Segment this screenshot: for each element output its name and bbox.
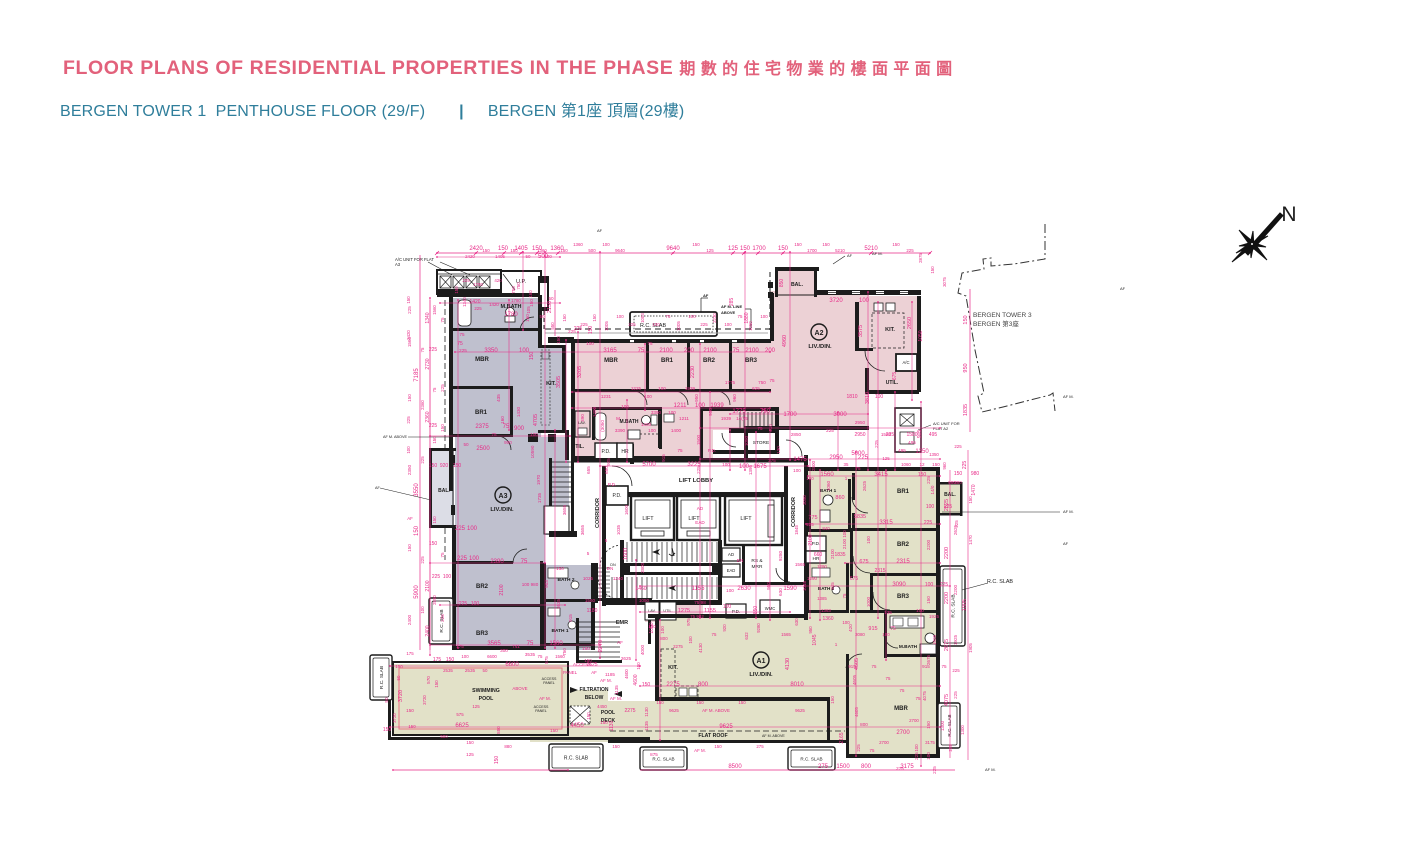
svg-text:3080: 3080 bbox=[855, 632, 865, 637]
svg-text:950: 950 bbox=[694, 394, 699, 402]
svg-text:2275: 2275 bbox=[673, 644, 683, 649]
svg-text:BELOW: BELOW bbox=[585, 695, 604, 701]
svg-text:160: 160 bbox=[500, 416, 505, 424]
svg-text:225: 225 bbox=[420, 556, 425, 564]
svg-text:AF M.: AF M. bbox=[610, 696, 622, 701]
svg-text:1925: 1925 bbox=[932, 634, 937, 645]
svg-text:2200: 2200 bbox=[944, 592, 950, 604]
svg-text:2800: 2800 bbox=[811, 460, 816, 471]
svg-text:150: 150 bbox=[968, 496, 973, 504]
svg-text:150: 150 bbox=[407, 394, 412, 402]
svg-text:BAL.: BAL. bbox=[791, 282, 804, 288]
svg-text:1240: 1240 bbox=[613, 576, 624, 581]
svg-text:75: 75 bbox=[647, 341, 653, 346]
svg-text:225: 225 bbox=[459, 601, 468, 607]
svg-text:1045: 1045 bbox=[812, 634, 818, 645]
svg-text:75 98: 75 98 bbox=[694, 600, 706, 605]
svg-text:100: 100 bbox=[471, 601, 480, 607]
svg-text:3720: 3720 bbox=[392, 713, 397, 723]
svg-text:6600: 6600 bbox=[487, 654, 497, 659]
svg-text:860: 860 bbox=[835, 495, 844, 501]
svg-text:915: 915 bbox=[848, 664, 856, 669]
svg-text:1400: 1400 bbox=[671, 428, 682, 433]
svg-text:980: 980 bbox=[971, 471, 980, 477]
svg-text:575: 575 bbox=[456, 712, 464, 717]
svg-text:5700: 5700 bbox=[642, 462, 656, 468]
svg-text:AF M. ABOVE: AF M. ABOVE bbox=[383, 435, 408, 439]
svg-text:2100: 2100 bbox=[808, 534, 814, 545]
svg-text:950: 950 bbox=[963, 363, 969, 372]
svg-text:100: 100 bbox=[842, 620, 850, 625]
svg-text:1005: 1005 bbox=[604, 321, 609, 331]
svg-text:9280: 9280 bbox=[778, 550, 783, 561]
svg-text:1810: 1810 bbox=[846, 394, 857, 400]
svg-text:1939: 1939 bbox=[685, 386, 696, 391]
svg-text:1: 1 bbox=[835, 642, 838, 647]
svg-text:A1: A1 bbox=[757, 658, 766, 665]
svg-text:100: 100 bbox=[866, 536, 871, 544]
svg-text:1560: 1560 bbox=[820, 472, 834, 478]
svg-text:AF M.: AF M. bbox=[872, 251, 883, 256]
svg-text:1385: 1385 bbox=[817, 596, 827, 601]
svg-text:3505: 3505 bbox=[556, 376, 562, 388]
svg-text:EMR: EMR bbox=[616, 620, 628, 626]
svg-text:BAL.: BAL. bbox=[438, 488, 450, 494]
svg-text:1905: 1905 bbox=[962, 599, 968, 611]
svg-text:225: 225 bbox=[474, 306, 482, 311]
svg-text:100: 100 bbox=[925, 582, 934, 588]
svg-text:100: 100 bbox=[443, 574, 452, 580]
svg-text:150: 150 bbox=[556, 566, 564, 571]
svg-text:75: 75 bbox=[890, 626, 896, 632]
svg-text:175: 175 bbox=[456, 644, 464, 649]
svg-text:2630: 2630 bbox=[737, 586, 751, 592]
svg-text:POOL: POOL bbox=[601, 710, 615, 716]
svg-text:PANEL: PANEL bbox=[543, 681, 555, 685]
svg-text:KIT.: KIT. bbox=[885, 327, 895, 333]
svg-text:2360: 2360 bbox=[420, 400, 425, 410]
svg-text:1500: 1500 bbox=[696, 434, 701, 445]
svg-text:AF M.: AF M. bbox=[694, 748, 706, 753]
svg-text:75: 75 bbox=[638, 348, 645, 354]
svg-text:75: 75 bbox=[870, 748, 875, 753]
svg-text:BR1: BR1 bbox=[897, 489, 910, 495]
svg-text:2535: 2535 bbox=[465, 668, 476, 673]
svg-text:75: 75 bbox=[757, 426, 763, 431]
svg-text:35: 35 bbox=[844, 462, 849, 467]
svg-text:1035: 1035 bbox=[616, 524, 621, 535]
svg-text:75: 75 bbox=[459, 332, 465, 337]
svg-text:1340: 1340 bbox=[462, 297, 467, 307]
svg-text:75: 75 bbox=[677, 448, 683, 453]
svg-text:50: 50 bbox=[548, 296, 554, 301]
svg-text:STORE: STORE bbox=[753, 440, 769, 446]
svg-text:1470: 1470 bbox=[968, 535, 973, 545]
svg-text:1025: 1025 bbox=[583, 576, 594, 581]
svg-text:1580: 1580 bbox=[881, 432, 892, 437]
svg-text:1050: 1050 bbox=[918, 330, 924, 341]
svg-text:AF: AF bbox=[703, 293, 709, 298]
svg-text:RS &: RS & bbox=[751, 558, 763, 564]
svg-text:75: 75 bbox=[738, 314, 743, 319]
svg-text:225: 225 bbox=[940, 582, 949, 588]
svg-text:5000: 5000 bbox=[851, 451, 865, 457]
svg-text:100: 100 bbox=[724, 322, 732, 327]
svg-text:2635: 2635 bbox=[556, 598, 561, 609]
svg-text:LIV./DIN.: LIV./DIN. bbox=[808, 344, 832, 350]
svg-text:M.BATH: M.BATH bbox=[899, 644, 918, 650]
svg-text:1405: 1405 bbox=[495, 254, 505, 259]
svg-text:75: 75 bbox=[521, 559, 528, 565]
svg-text:ACCESS: ACCESS bbox=[573, 662, 591, 667]
svg-text:1970: 1970 bbox=[536, 474, 541, 485]
svg-text:660: 660 bbox=[814, 552, 823, 558]
svg-text:160: 160 bbox=[528, 290, 533, 298]
svg-text:500: 500 bbox=[588, 248, 596, 253]
svg-text:AD: AD bbox=[728, 552, 735, 557]
svg-text:975: 975 bbox=[686, 618, 691, 626]
svg-text:500: 500 bbox=[544, 254, 552, 259]
svg-text:6625: 6625 bbox=[455, 723, 469, 729]
svg-text:2100: 2100 bbox=[830, 549, 835, 559]
svg-text:2375: 2375 bbox=[475, 424, 489, 430]
svg-text:4605: 4605 bbox=[854, 707, 859, 717]
svg-text:150: 150 bbox=[642, 682, 651, 688]
svg-text:1460: 1460 bbox=[635, 586, 646, 592]
svg-text:3535: 3535 bbox=[525, 652, 536, 657]
svg-text:100: 100 bbox=[882, 632, 890, 637]
svg-text:AF: AF bbox=[1063, 541, 1069, 546]
svg-text:M.BATH: M.BATH bbox=[619, 419, 638, 425]
svg-text:150: 150 bbox=[692, 242, 700, 247]
svg-text:150: 150 bbox=[529, 299, 534, 307]
svg-text:225: 225 bbox=[420, 456, 425, 464]
svg-text:FILTRATION: FILTRATION bbox=[580, 687, 609, 693]
svg-text:BR1: BR1 bbox=[661, 358, 674, 364]
svg-text:850: 850 bbox=[779, 279, 785, 288]
svg-text:2100: 2100 bbox=[499, 584, 505, 595]
svg-text:750: 750 bbox=[516, 282, 521, 290]
svg-text:1360: 1360 bbox=[537, 248, 547, 253]
svg-text:150: 150 bbox=[778, 246, 789, 252]
svg-text:225: 225 bbox=[406, 416, 411, 424]
svg-text:75: 75 bbox=[432, 387, 437, 392]
svg-text:LIFT LOBBY: LIFT LOBBY bbox=[679, 478, 713, 484]
svg-text:625: 625 bbox=[752, 386, 760, 391]
svg-text:225: 225 bbox=[954, 444, 962, 449]
svg-text:2150: 2150 bbox=[547, 301, 553, 313]
svg-text:100: 100 bbox=[793, 468, 801, 473]
svg-text:100: 100 bbox=[467, 526, 478, 532]
svg-text:2400: 2400 bbox=[407, 614, 412, 625]
svg-text:275: 275 bbox=[818, 764, 829, 770]
svg-text:655: 655 bbox=[586, 466, 591, 474]
svg-text:100: 100 bbox=[644, 394, 652, 399]
svg-text:2315: 2315 bbox=[874, 568, 885, 574]
svg-text:50: 50 bbox=[526, 254, 531, 259]
svg-text:4130: 4130 bbox=[698, 643, 703, 653]
svg-text:ABOVE: ABOVE bbox=[512, 686, 527, 691]
svg-text:AF M. ABOVE: AF M. ABOVE bbox=[762, 734, 785, 738]
svg-text:2950: 2950 bbox=[854, 432, 865, 438]
svg-text:POOL: POOL bbox=[479, 696, 495, 702]
svg-text:1500: 1500 bbox=[836, 764, 850, 770]
svg-text:9280: 9280 bbox=[756, 623, 761, 633]
svg-text:100: 100 bbox=[926, 504, 935, 510]
svg-text:300: 300 bbox=[500, 648, 508, 653]
svg-text:75 982: 75 982 bbox=[690, 614, 704, 619]
svg-text:AF M.: AF M. bbox=[1063, 394, 1074, 399]
svg-text:135: 135 bbox=[884, 610, 892, 615]
svg-text:4705: 4705 bbox=[533, 414, 539, 426]
svg-text:3720: 3720 bbox=[398, 690, 404, 702]
svg-text:P.D.: P.D. bbox=[608, 482, 616, 487]
svg-text:150: 150 bbox=[550, 728, 558, 733]
svg-text:750: 750 bbox=[758, 380, 766, 385]
svg-text:800: 800 bbox=[660, 636, 668, 641]
svg-text:905: 905 bbox=[917, 430, 923, 439]
svg-text:570: 570 bbox=[426, 676, 431, 684]
svg-text:150: 150 bbox=[383, 727, 392, 733]
svg-text:BAL.: BAL. bbox=[944, 492, 956, 498]
svg-text:2100: 2100 bbox=[659, 348, 673, 354]
svg-text:1590: 1590 bbox=[783, 586, 797, 592]
svg-text:(3050: (3050 bbox=[600, 420, 605, 432]
svg-text:1180: 1180 bbox=[587, 608, 598, 614]
svg-text:75: 75 bbox=[761, 408, 767, 413]
svg-text:880: 880 bbox=[954, 480, 962, 485]
svg-text:150: 150 bbox=[612, 744, 620, 749]
svg-text:1560: 1560 bbox=[555, 654, 565, 659]
svg-text:225: 225 bbox=[954, 520, 959, 528]
svg-text:495: 495 bbox=[898, 448, 906, 453]
svg-text:2350: 2350 bbox=[407, 464, 412, 475]
svg-text:100 980: 100 980 bbox=[522, 582, 539, 587]
svg-text:1363: 1363 bbox=[821, 608, 831, 613]
svg-text:875: 875 bbox=[650, 752, 658, 757]
svg-text:225: 225 bbox=[826, 428, 834, 433]
svg-text:845: 845 bbox=[830, 582, 835, 590]
svg-text:100: 100 bbox=[842, 530, 847, 538]
svg-text:1350: 1350 bbox=[915, 449, 929, 455]
svg-text:N: N bbox=[1281, 203, 1296, 226]
svg-text:75: 75 bbox=[886, 676, 891, 681]
svg-text:2200: 2200 bbox=[944, 547, 950, 559]
svg-text:75: 75 bbox=[842, 593, 847, 598]
svg-text:150: 150 bbox=[738, 700, 746, 705]
svg-text:14/0: 14/0 bbox=[930, 485, 935, 494]
svg-text:950: 950 bbox=[708, 408, 713, 416]
svg-text:100: 100 bbox=[688, 636, 693, 644]
svg-text:1275: 1275 bbox=[678, 608, 690, 614]
svg-text:160: 160 bbox=[525, 314, 530, 322]
svg-text:UTIL.: UTIL. bbox=[663, 609, 672, 613]
svg-text:150: 150 bbox=[408, 724, 416, 729]
svg-text:P.D.: P.D. bbox=[732, 609, 740, 614]
svg-text:AF M.: AF M. bbox=[985, 767, 996, 772]
svg-text:1490: 1490 bbox=[592, 406, 597, 417]
svg-text:630: 630 bbox=[794, 618, 799, 626]
svg-text:900: 900 bbox=[514, 426, 525, 432]
svg-text:2165: 2165 bbox=[839, 732, 845, 743]
svg-text:A/C UNIT FOR FLAT: A/C UNIT FOR FLAT bbox=[395, 257, 434, 262]
svg-text:8010: 8010 bbox=[790, 682, 804, 688]
svg-text:ABOVE: ABOVE bbox=[721, 310, 736, 315]
svg-text:A3: A3 bbox=[499, 493, 508, 500]
svg-text:9625: 9625 bbox=[669, 708, 679, 713]
svg-text:150: 150 bbox=[794, 242, 802, 247]
svg-text:150: 150 bbox=[560, 248, 568, 253]
svg-text:50: 50 bbox=[396, 675, 401, 680]
svg-text:AF M.: AF M. bbox=[1063, 509, 1074, 514]
svg-text:225: 225 bbox=[874, 440, 879, 448]
svg-text:KIT.: KIT. bbox=[668, 665, 678, 671]
svg-text:435: 435 bbox=[496, 394, 501, 402]
svg-text:1735: 1735 bbox=[537, 492, 542, 503]
svg-text:225: 225 bbox=[806, 522, 814, 527]
svg-text:800: 800 bbox=[698, 682, 709, 688]
svg-text:675: 675 bbox=[859, 559, 868, 565]
svg-text:AF M.: AF M. bbox=[600, 678, 612, 683]
svg-text:1565: 1565 bbox=[795, 562, 806, 567]
svg-text:150: 150 bbox=[414, 525, 420, 536]
svg-text:2200: 2200 bbox=[926, 539, 931, 550]
svg-text:105: 105 bbox=[526, 306, 531, 314]
svg-text:75: 75 bbox=[733, 348, 740, 354]
svg-text:125: 125 bbox=[472, 704, 480, 709]
svg-text:675: 675 bbox=[892, 372, 898, 381]
svg-text:1600: 1600 bbox=[623, 548, 629, 560]
svg-text:BR2: BR2 bbox=[703, 358, 716, 364]
svg-text:150: 150 bbox=[822, 242, 830, 247]
svg-text:KIT.: KIT. bbox=[546, 381, 556, 387]
svg-text:840: 840 bbox=[822, 526, 830, 531]
svg-text:AF: AF bbox=[597, 228, 603, 233]
svg-text:R.C. SLAB: R.C. SLAB bbox=[947, 714, 952, 736]
svg-text:5210: 5210 bbox=[835, 248, 845, 253]
svg-text:AF M.: AF M. bbox=[539, 696, 551, 701]
svg-text:675: 675 bbox=[850, 576, 859, 582]
svg-text:125: 125 bbox=[706, 248, 714, 253]
svg-text:1050: 1050 bbox=[748, 321, 753, 331]
svg-text:75: 75 bbox=[915, 696, 921, 701]
svg-text:225: 225 bbox=[455, 526, 466, 532]
svg-text:BERGEN 第3座: BERGEN 第3座 bbox=[973, 319, 1019, 328]
svg-text:R.C. SLAB: R.C. SLAB bbox=[951, 594, 957, 617]
svg-text:225: 225 bbox=[952, 668, 960, 673]
svg-text:3390: 3390 bbox=[651, 410, 662, 415]
svg-text:1135: 1135 bbox=[644, 721, 649, 731]
svg-text:150: 150 bbox=[926, 596, 931, 604]
svg-text:1290: 1290 bbox=[807, 576, 818, 581]
svg-text:75: 75 bbox=[769, 378, 775, 383]
svg-text:150: 150 bbox=[498, 246, 509, 252]
svg-text:100: 100 bbox=[926, 752, 931, 760]
svg-text:1835: 1835 bbox=[963, 404, 969, 416]
svg-text:915: 915 bbox=[868, 626, 877, 632]
svg-text:150: 150 bbox=[434, 680, 439, 688]
svg-text:BR3: BR3 bbox=[897, 594, 910, 600]
svg-text:125: 125 bbox=[728, 246, 739, 252]
svg-text:225: 225 bbox=[932, 766, 937, 774]
svg-text:100: 100 bbox=[586, 341, 594, 346]
svg-text:9625: 9625 bbox=[795, 708, 805, 713]
svg-text:1600: 1600 bbox=[624, 504, 629, 515]
svg-text:960: 960 bbox=[942, 462, 947, 470]
svg-text:AF: AF bbox=[617, 640, 623, 645]
svg-text:150: 150 bbox=[466, 740, 474, 745]
svg-text:4960: 4960 bbox=[782, 335, 788, 347]
svg-text:225: 225 bbox=[457, 556, 468, 562]
svg-text:125: 125 bbox=[466, 752, 474, 757]
svg-text:1360: 1360 bbox=[573, 242, 583, 247]
svg-text:150: 150 bbox=[932, 462, 940, 467]
svg-text:MBR: MBR bbox=[475, 357, 489, 363]
svg-text:75: 75 bbox=[491, 432, 497, 437]
svg-text:1565: 1565 bbox=[781, 632, 791, 637]
svg-text:150: 150 bbox=[892, 242, 900, 247]
svg-text:1939: 1939 bbox=[721, 416, 732, 421]
svg-text:1835: 1835 bbox=[834, 552, 845, 558]
svg-text:4000: 4000 bbox=[640, 644, 645, 655]
svg-text:75: 75 bbox=[872, 664, 877, 669]
svg-text:1300: 1300 bbox=[960, 725, 965, 735]
svg-text:225: 225 bbox=[914, 752, 919, 760]
svg-text:3000: 3000 bbox=[833, 412, 847, 418]
svg-text:5835: 5835 bbox=[854, 514, 866, 520]
svg-text:2800: 2800 bbox=[640, 562, 645, 573]
svg-text:630: 630 bbox=[778, 588, 783, 596]
svg-text:275: 275 bbox=[756, 744, 764, 749]
svg-text:LIFT: LIFT bbox=[740, 516, 752, 522]
svg-text:1560: 1560 bbox=[432, 305, 437, 315]
svg-text:2100: 2100 bbox=[703, 348, 717, 354]
svg-text:1430: 1430 bbox=[516, 406, 521, 417]
svg-text:1780: 1780 bbox=[511, 298, 521, 303]
svg-text:1225: 1225 bbox=[631, 386, 642, 391]
svg-text:150: 150 bbox=[714, 744, 722, 749]
svg-text:100: 100 bbox=[658, 386, 666, 391]
svg-text:8500: 8500 bbox=[728, 764, 742, 770]
svg-text:75: 75 bbox=[538, 654, 543, 659]
svg-text:2500: 2500 bbox=[476, 446, 490, 452]
svg-text:225: 225 bbox=[440, 384, 445, 392]
svg-text:BATH 2: BATH 2 bbox=[558, 577, 575, 583]
svg-text:100: 100 bbox=[652, 322, 660, 327]
svg-text:P.D.: P.D. bbox=[601, 449, 610, 455]
svg-text:M.BATH: M.BATH bbox=[501, 304, 522, 310]
svg-text:225: 225 bbox=[962, 461, 968, 470]
svg-text:150: 150 bbox=[930, 266, 935, 274]
svg-text:AF: AF bbox=[1120, 286, 1126, 291]
svg-text:5900: 5900 bbox=[414, 585, 420, 599]
svg-text:1300: 1300 bbox=[940, 720, 945, 731]
svg-text:1000: 1000 bbox=[866, 596, 871, 607]
svg-text:2100: 2100 bbox=[842, 538, 847, 549]
svg-text:1360: 1360 bbox=[822, 616, 833, 622]
svg-text:1130: 1130 bbox=[644, 707, 649, 717]
svg-text:225: 225 bbox=[459, 348, 467, 353]
svg-text:4605: 4605 bbox=[852, 674, 857, 685]
svg-text:R.C. SLAB: R.C. SLAB bbox=[379, 666, 385, 689]
svg-text:130: 130 bbox=[776, 446, 781, 454]
svg-text:2700: 2700 bbox=[909, 718, 919, 723]
svg-text:800: 800 bbox=[861, 764, 872, 770]
svg-text:150: 150 bbox=[510, 248, 518, 253]
svg-text:4600: 4600 bbox=[624, 669, 629, 679]
svg-text:150: 150 bbox=[395, 664, 403, 669]
svg-text:3165: 3165 bbox=[603, 348, 617, 354]
